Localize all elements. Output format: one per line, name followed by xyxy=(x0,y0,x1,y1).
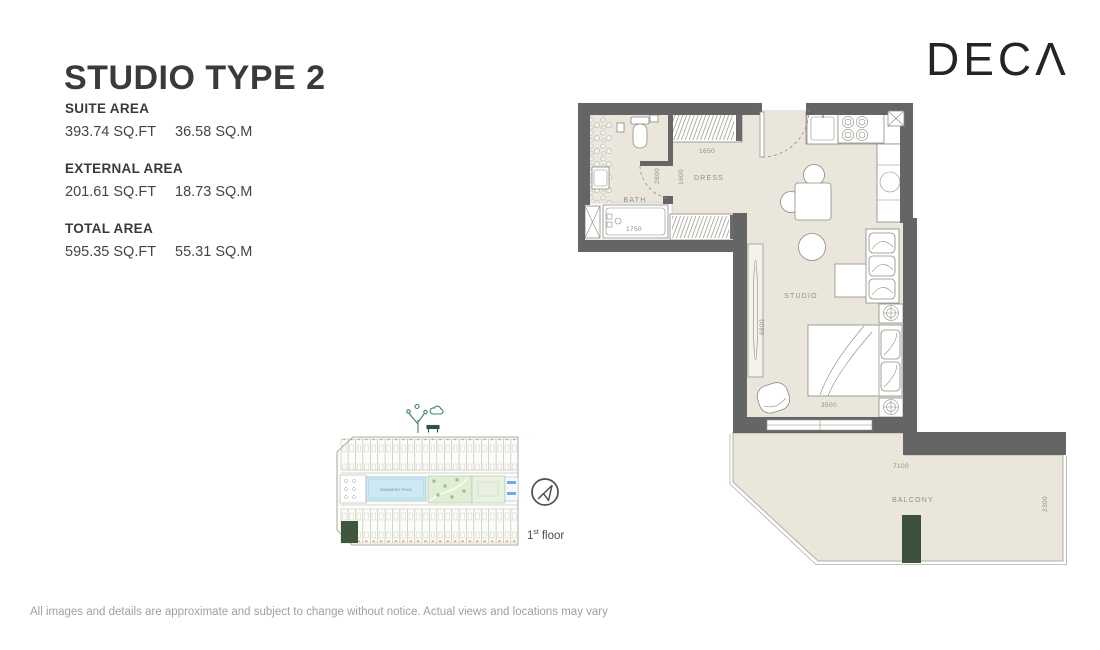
total-area-values: 595.35 SQ.FT 55.31 SQ.M xyxy=(65,244,305,260)
kitchen-counter xyxy=(877,144,903,222)
studio-width-dim: 3500 xyxy=(821,402,837,409)
dress-width-dim: 2800 xyxy=(654,168,661,184)
bath-feature-wall xyxy=(590,113,612,203)
suite-area-values: 393.74 SQ.FT 36.58 SQ.M xyxy=(65,124,305,140)
cloud-icon xyxy=(430,406,443,414)
external-area-group: EXTERNAL AREA 201.61 SQ.FT 18.73 SQ.M xyxy=(65,161,305,200)
tree-icon xyxy=(407,405,427,434)
pillow xyxy=(881,330,900,359)
studio-label: STUDIO xyxy=(784,293,818,300)
studio-length-dim: 6800 xyxy=(759,319,766,335)
suite-area-sqft: 393.74 SQ.FT xyxy=(65,124,175,140)
building-outline: SWIMMING POOL xyxy=(337,437,518,545)
garden-lawn xyxy=(472,476,505,503)
bathtub xyxy=(603,205,668,238)
balcony-depth-dim: 2300 xyxy=(1042,496,1049,512)
page-title: STUDIO TYPE 2 xyxy=(64,59,326,98)
toilet-icon xyxy=(631,117,649,124)
suite-area-label: SUITE AREA xyxy=(65,101,305,116)
brochure-page: STUDIO TYPE 2 DECΛ SUITE AREA 393.74 SQ.… xyxy=(0,0,1100,650)
suite-area-group: SUITE AREA 393.74 SQ.FT 36.58 SQ.M xyxy=(65,101,305,140)
bath-dim: 1750 xyxy=(626,226,642,233)
suite-area-sqm: 36.58 SQ.M xyxy=(175,124,252,140)
brand-logo: DECΛ xyxy=(926,32,1070,86)
balcony-width-dim: 7100 xyxy=(893,463,909,470)
swimming-pool: SWIMMING POOL xyxy=(366,477,426,501)
bed xyxy=(808,325,902,396)
total-area-group: TOTAL AREA 595.35 SQ.FT 55.31 SQ.M xyxy=(65,221,305,260)
external-area-label: EXTERNAL AREA xyxy=(65,161,305,176)
garden-court xyxy=(428,476,472,503)
dress-label: DRESS xyxy=(694,175,724,182)
nightstand xyxy=(879,398,903,417)
pool-label: SWIMMING POOL xyxy=(380,488,412,492)
balcony-label: BALCONY xyxy=(892,497,934,504)
external-area-values: 201.61 SQ.FT 18.73 SQ.M xyxy=(65,184,305,200)
gym-area xyxy=(505,477,518,501)
dress-length-dim: 1600 xyxy=(678,169,685,185)
bath-label: BATH xyxy=(624,197,647,204)
bench-icon xyxy=(427,426,439,433)
total-area-label: TOTAL AREA xyxy=(65,221,305,236)
total-area-sqft: 595.35 SQ.FT xyxy=(65,244,175,260)
pillow xyxy=(881,362,900,391)
floor-plan: BATH 1750 DRESS 1650 2800 1600 STUDIO 68… xyxy=(570,95,1095,575)
external-area-sqm: 18.73 SQ.M xyxy=(175,184,252,200)
pouf xyxy=(799,234,826,261)
external-area-sqft: 201.61 SQ.FT xyxy=(65,184,175,200)
dispenser-icon xyxy=(617,123,624,132)
landscape-icons xyxy=(407,405,443,434)
clubhouse xyxy=(340,475,366,503)
entry-door-leaf xyxy=(760,112,764,157)
unit-row-bottom xyxy=(341,509,518,543)
wall-mirror xyxy=(748,244,763,377)
area-summary: SUITE AREA 393.74 SQ.FT 36.58 SQ.M EXTER… xyxy=(65,101,305,281)
planter xyxy=(902,515,921,563)
compass-icon xyxy=(532,479,558,505)
highlighted-unit xyxy=(341,521,358,543)
chair xyxy=(804,165,825,186)
nightstand xyxy=(879,304,903,323)
disclaimer-text: All images and details are approximate a… xyxy=(30,606,608,618)
total-area-sqm: 55.31 SQ.M xyxy=(175,244,252,260)
dining-table xyxy=(795,183,831,220)
wardrobe-dim: 1650 xyxy=(699,148,715,155)
floor-level-label: 1stfloor xyxy=(527,529,564,542)
unit-row-top xyxy=(341,439,518,470)
